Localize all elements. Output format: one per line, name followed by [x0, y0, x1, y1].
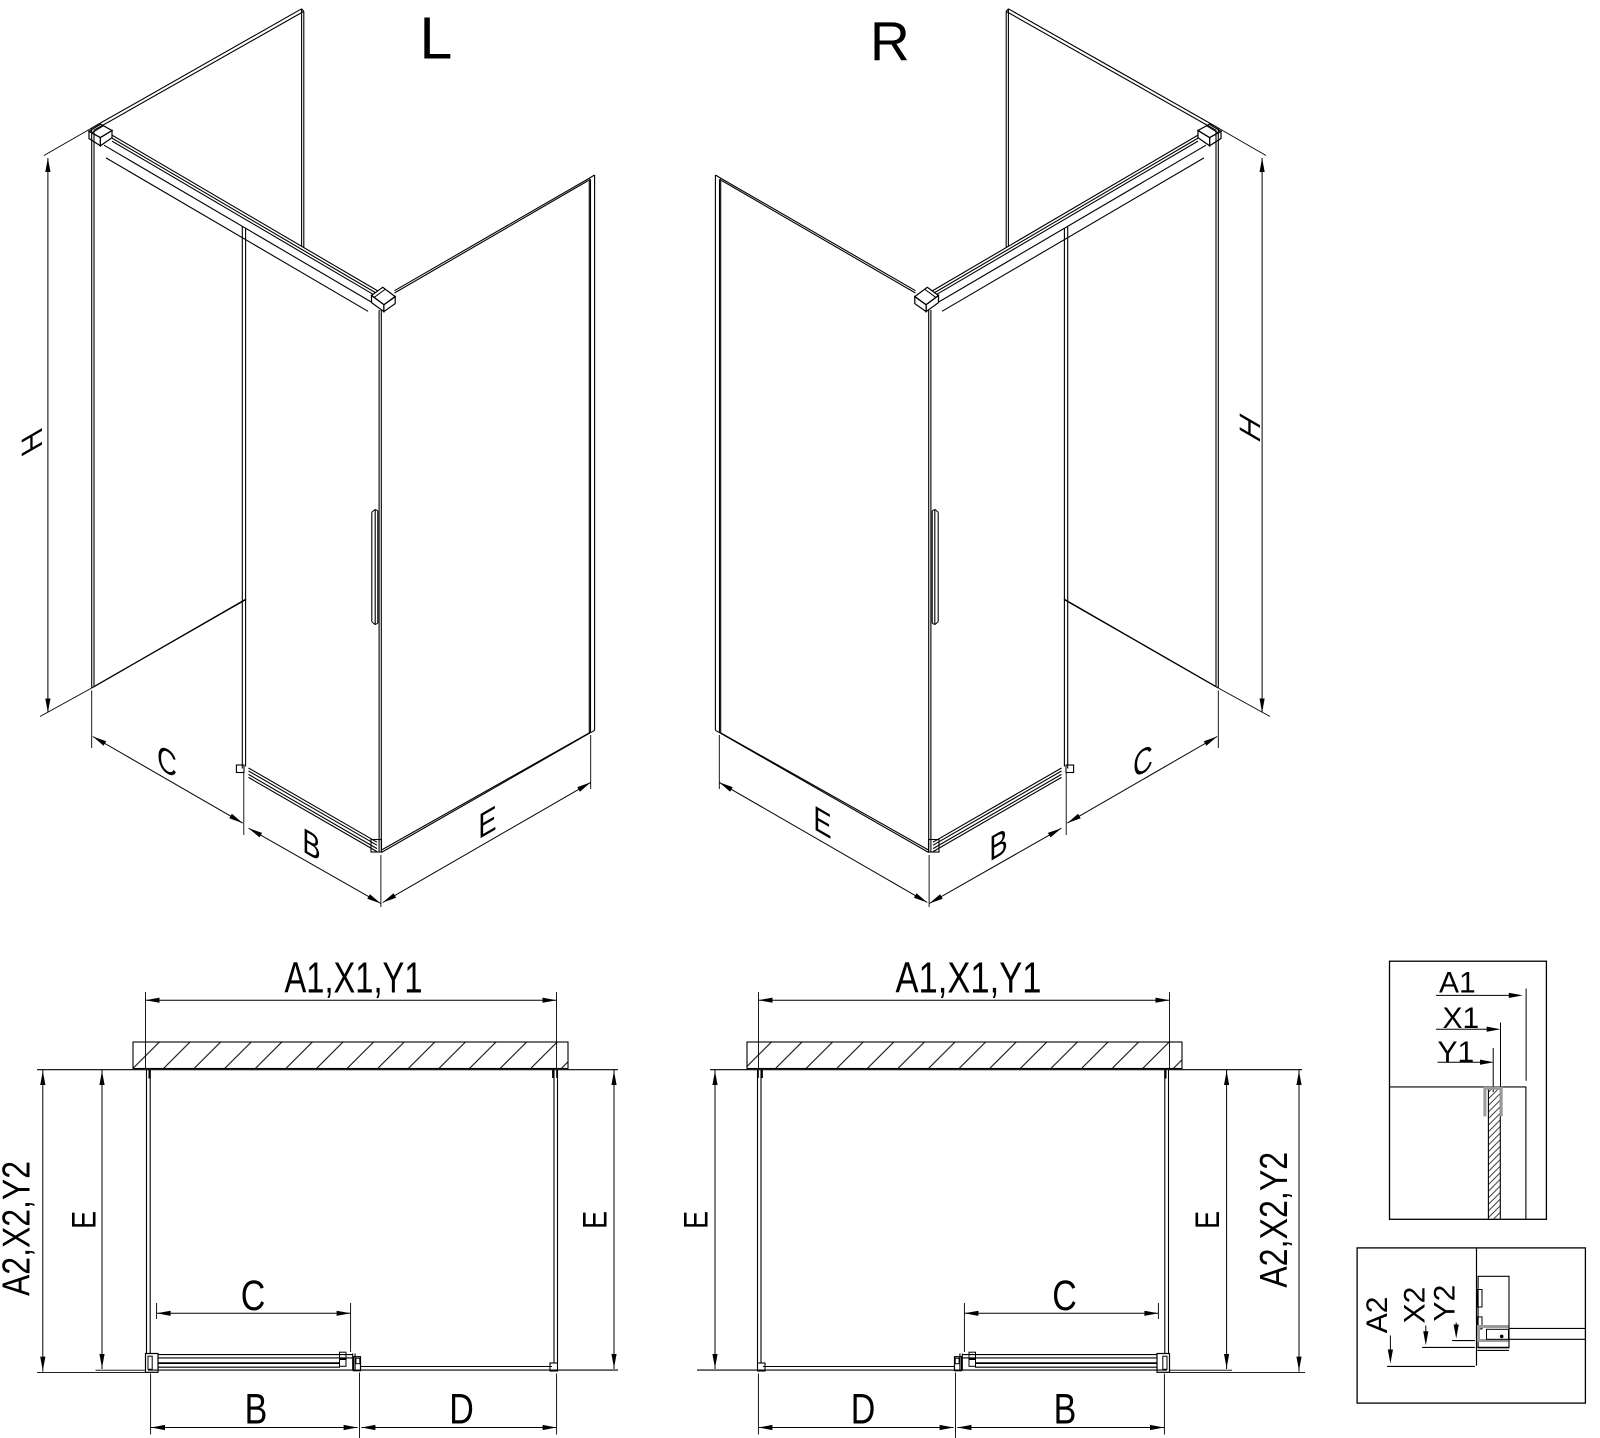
svg-text:X2: X2	[1399, 1287, 1432, 1324]
svg-text:R: R	[870, 10, 910, 72]
svg-text:X1: X1	[1443, 1002, 1480, 1035]
svg-text:Y2: Y2	[1429, 1285, 1462, 1322]
svg-text:D: D	[851, 1386, 876, 1433]
svg-text:A2,X2,Y2: A2,X2,Y2	[1253, 1152, 1296, 1288]
svg-text:A1,X1,Y1: A1,X1,Y1	[285, 954, 423, 1003]
svg-text:L: L	[420, 6, 453, 72]
svg-text:A1,X1,Y1: A1,X1,Y1	[896, 954, 1042, 1003]
svg-text:A2: A2	[1361, 1297, 1394, 1334]
svg-text:B: B	[245, 1386, 268, 1433]
svg-text:A2,X2,Y2: A2,X2,Y2	[0, 1161, 39, 1296]
svg-text:E: E	[1188, 1211, 1227, 1229]
svg-text:E: E	[676, 1211, 715, 1229]
svg-text:E: E	[64, 1211, 103, 1229]
svg-text:Y1: Y1	[1438, 1036, 1475, 1069]
svg-text:C: C	[1052, 1272, 1077, 1319]
svg-text:B: B	[1054, 1386, 1077, 1433]
svg-text:E: E	[575, 1211, 614, 1229]
svg-text:A1: A1	[1439, 966, 1476, 999]
svg-text:D: D	[449, 1386, 474, 1433]
svg-text:C: C	[241, 1272, 266, 1319]
